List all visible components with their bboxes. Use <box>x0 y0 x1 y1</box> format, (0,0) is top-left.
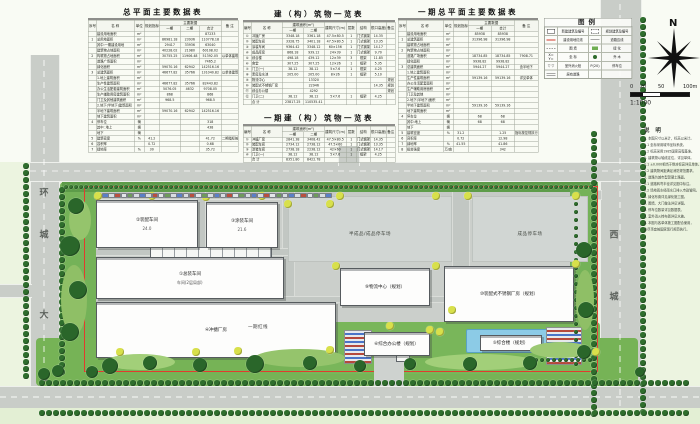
street-tree-icon <box>333 380 338 385</box>
lawn-patch <box>425 354 535 370</box>
street-tree-icon <box>144 410 149 415</box>
legend-label: 道路边线 <box>602 36 633 45</box>
street-tree-icon <box>361 410 366 415</box>
street-tree-icon <box>620 380 625 385</box>
table-cell: 装配式不锈钢厂房 <box>251 83 282 89</box>
north-compass: N <box>646 14 700 90</box>
street-tree-icon <box>340 410 345 415</box>
street-tree-icon <box>291 410 296 415</box>
street-tree-icon <box>417 380 422 385</box>
table-cell <box>324 157 346 162</box>
table-cell: 23817.25 <box>282 99 303 105</box>
street-tree-icon <box>23 303 28 308</box>
legend-label: 绿 化 <box>602 44 633 53</box>
table-cell: 生产辅助用房建筑面积 <box>96 92 134 98</box>
street-tree-icon <box>648 380 653 385</box>
street-tree-icon <box>591 152 596 157</box>
road-name-west: 城 <box>39 228 48 241</box>
table-cell: 门式钢架 <box>356 137 370 142</box>
table-cell: 342 <box>491 147 514 153</box>
scale-bar: 02050100m 1:1000 <box>630 84 700 113</box>
tree-icon <box>52 365 64 377</box>
street-tree-icon <box>591 194 596 199</box>
legend-label: 乔 木 <box>602 53 633 62</box>
street-tree-icon <box>515 410 520 415</box>
street-tree-icon <box>591 320 596 325</box>
street-tree-icon <box>613 380 618 385</box>
street-tree-icon <box>591 229 596 234</box>
street-tree-icon <box>640 388 645 393</box>
table-cell <box>221 147 238 153</box>
road-name-west: 环 <box>39 186 48 199</box>
street-tree-icon <box>640 346 645 351</box>
street-tree-icon <box>130 380 135 385</box>
street-tree-icon <box>23 366 28 371</box>
column-header: 备 注 <box>514 20 538 31</box>
column-header: 层数 <box>346 126 356 137</box>
table-cell: 35.72 <box>199 147 221 153</box>
table-cell: 万/亩 <box>443 147 453 153</box>
street-tree-icon <box>186 380 191 385</box>
street-tree-icon <box>123 410 128 415</box>
legend-label: 坐 标 <box>558 53 589 62</box>
street-tree-icon <box>109 410 114 415</box>
street-tree-icon <box>655 410 660 415</box>
street-tree-icon <box>640 24 645 29</box>
street-tree-icon <box>591 243 596 248</box>
street-tree-icon <box>23 268 28 273</box>
street-tree-icon <box>158 410 163 415</box>
table-cell: 8422.78 <box>303 157 324 162</box>
north-label: N <box>669 18 677 29</box>
road-name-east: 西 <box>609 228 618 241</box>
street-tree-icon <box>158 380 163 385</box>
street-tree-icon <box>592 380 597 385</box>
street-tree-icon <box>494 380 499 385</box>
street-tree-icon <box>23 373 28 378</box>
street-tree-icon <box>591 145 596 150</box>
street-tree-icon <box>144 380 149 385</box>
street-tree-icon <box>501 410 506 415</box>
table-cell: 指标按控规执行 <box>514 130 538 136</box>
street-tree-icon <box>23 359 28 364</box>
street-tree-icon <box>578 410 583 415</box>
ornamental-tree-icon <box>116 348 123 355</box>
street-tree-icon <box>591 201 596 206</box>
street-tree-icon <box>591 250 596 255</box>
street-tree-icon <box>277 380 282 385</box>
building-label: ⑥综合办公楼（规划） <box>375 342 420 347</box>
column-header: 檐口高度(m) <box>370 22 386 33</box>
column-header: 编号 <box>243 126 251 137</box>
street-tree-icon <box>326 380 331 385</box>
tree-icon <box>523 356 537 370</box>
street-tree-icon <box>23 212 28 217</box>
street-tree-icon <box>207 410 212 415</box>
table-cell <box>356 99 370 105</box>
street-tree-icon <box>431 380 436 385</box>
street-tree-icon <box>23 184 28 189</box>
table-row: 办公生活配套建筑面积m²5076.0546329708.05 <box>88 86 238 92</box>
street-tree-icon <box>319 380 324 385</box>
street-tree-icon <box>60 410 65 415</box>
street-tree-icon <box>23 317 28 322</box>
street-tree-icon <box>640 17 645 22</box>
scale-tick-label: 50 <box>658 84 664 90</box>
column-header: 序号 <box>88 20 96 31</box>
table-row: 生产性建筑面积m²46677.823576682443.82 <box>88 81 238 87</box>
table-cell: 47.5×80.5 <box>324 39 346 45</box>
street-tree-icon <box>333 410 338 415</box>
street-tree-icon <box>39 380 44 385</box>
table-row: 3总建筑面积m²46677.8235766131040.82以单体建筑面积计 <box>88 70 238 76</box>
legend-title: 图例 <box>545 19 633 28</box>
legend-symbol-fence <box>545 44 558 53</box>
street-tree-icon <box>256 380 261 385</box>
street-tree-icon <box>23 240 28 245</box>
street-tree-icon <box>640 31 645 36</box>
street-tree-icon <box>23 226 28 231</box>
street-tree-icon <box>74 380 79 385</box>
street-tree-icon <box>23 163 28 168</box>
street-tree-icon <box>23 261 28 266</box>
street-tree-icon <box>23 254 28 259</box>
yard-label: 半成品/成品停车场 <box>349 230 391 237</box>
tree-icon <box>102 358 118 374</box>
street-tree-icon <box>396 380 401 385</box>
street-tree-icon <box>312 380 317 385</box>
street-tree-icon <box>522 380 527 385</box>
street-tree-icon <box>256 410 261 415</box>
street-tree-icon <box>214 410 219 415</box>
street-tree-icon <box>536 410 541 415</box>
street-tree-icon <box>396 410 401 415</box>
street-tree-icon <box>368 410 373 415</box>
street-tree-icon <box>67 380 72 385</box>
street-tree-icon <box>46 410 51 415</box>
street-tree-icon <box>74 410 79 415</box>
ornamental-tree-icon <box>386 322 393 329</box>
street-tree-icon <box>298 410 303 415</box>
street-tree-icon <box>95 380 100 385</box>
street-tree-icon <box>557 410 562 415</box>
street-tree-icon <box>291 380 296 385</box>
street-tree-icon <box>640 402 645 407</box>
street-tree-icon <box>67 410 72 415</box>
table-cell <box>324 99 346 105</box>
street-tree-icon <box>564 410 569 415</box>
scale-ratio: 1:1000 <box>630 99 690 106</box>
street-tree-icon <box>591 397 596 402</box>
table-cell: 11906.48 <box>180 53 199 59</box>
table-cell: 规划 <box>386 77 395 83</box>
street-tree-icon <box>263 410 268 415</box>
scale-tick-label: 0 <box>630 84 633 90</box>
table-title: 建（构）筑物一览表 <box>243 8 395 22</box>
table-row: 合 计23817.25110535.41 <box>243 99 395 105</box>
street-tree-icon <box>543 380 548 385</box>
table-cell <box>370 99 386 105</box>
street-tree-icon <box>179 380 184 385</box>
annotation: 一期红线 <box>248 323 268 330</box>
street-tree-icon <box>340 380 345 385</box>
street-tree-icon <box>23 324 28 329</box>
table-cell: 规划 <box>386 83 395 89</box>
street-tree-icon <box>23 338 28 343</box>
street-tree-icon <box>550 410 555 415</box>
table-cell: 合 计 <box>251 99 282 105</box>
table-title: 总平面主要数据表 <box>88 6 238 20</box>
tree-icon <box>193 358 207 372</box>
street-tree-icon <box>95 410 100 415</box>
tree-icon <box>246 355 264 373</box>
street-tree-icon <box>508 410 513 415</box>
table-cell: 规划 <box>386 88 395 94</box>
street-tree-icon <box>424 410 429 415</box>
table-row: 半地下建筑面积m²59070.1662942142516.16 <box>88 108 238 114</box>
table-cell: 40228.02 <box>159 48 180 54</box>
tree-icon <box>68 198 84 214</box>
table-row: 8投资强度万/亩342 <box>398 147 538 153</box>
table-cell <box>514 147 538 153</box>
table-phase1-site-data: 一期总平面主要数据表序号名 称单位规划指标主要数据备 注一期合计建设用地面积m²… <box>398 6 538 299</box>
legend-symbol-tree <box>589 53 602 62</box>
street-tree-icon <box>39 410 44 415</box>
street-tree-icon <box>591 264 596 269</box>
street-tree-icon <box>591 215 596 220</box>
table-cell: 投资强度 <box>406 147 443 153</box>
ornamental-tree-icon <box>572 192 579 199</box>
street-tree-icon <box>382 380 387 385</box>
street-tree-icon <box>515 380 520 385</box>
street-tree-icon <box>319 410 324 415</box>
table-cell: 46677.82 <box>159 70 180 76</box>
street-tree-icon <box>221 410 226 415</box>
building-label: ⑤综合楼（规划） <box>493 341 529 346</box>
street-tree-icon <box>59 341 64 346</box>
table-cell: 8351.80 <box>282 157 303 162</box>
street-tree-icon <box>23 345 28 350</box>
street-tree-icon <box>59 229 64 234</box>
street-tree-icon <box>23 282 28 287</box>
street-tree-icon <box>620 410 625 415</box>
column-header: 规划指标 <box>144 20 159 31</box>
ornamental-tree-icon <box>326 346 333 353</box>
table-cell: 46677.82 <box>159 81 180 87</box>
table-cell <box>386 157 395 162</box>
street-tree-icon <box>172 410 177 415</box>
table-cell: 门式钢架 <box>356 50 370 56</box>
table-cell: 门式钢架 <box>356 39 370 45</box>
table-cell: 30755.25 <box>159 53 180 59</box>
street-tree-icon <box>23 205 28 210</box>
street-tree-icon <box>193 410 198 415</box>
ornamental-tree-icon <box>234 347 241 354</box>
street-tree-icon <box>23 219 28 224</box>
street-tree-icon <box>591 369 596 374</box>
tree-icon <box>577 345 591 359</box>
street-tree-icon <box>88 410 93 415</box>
street-tree-icon <box>591 341 596 346</box>
street-tree-icon <box>172 380 177 385</box>
street-tree-icon <box>662 380 667 385</box>
street-tree-icon <box>640 73 645 78</box>
table-cell: 2.地下(半地下)建筑面积 <box>96 103 134 109</box>
table-cell: 8 <box>398 147 406 153</box>
street-tree-icon <box>591 173 596 178</box>
column-header: 序号 <box>398 20 406 31</box>
street-tree-icon <box>23 331 28 336</box>
scale-numbers: 02050100m <box>630 84 700 88</box>
street-tree-icon <box>23 198 28 203</box>
table-cell: 82443.82 <box>199 81 221 87</box>
column-header: 名 称 <box>406 20 443 31</box>
street-tree-icon <box>543 410 548 415</box>
street-tree-icon <box>214 380 219 385</box>
street-tree-icon <box>375 380 380 385</box>
street-tree-icon <box>591 257 596 262</box>
table-cell <box>370 157 386 162</box>
column-header: 单位 <box>443 20 453 31</box>
column-header: 名 称 <box>251 22 282 33</box>
tree-icon <box>354 360 366 372</box>
street-tree-icon <box>263 380 268 385</box>
street-tree-icon <box>53 410 58 415</box>
street-tree-icon <box>655 380 660 385</box>
street-tree-icon <box>305 380 310 385</box>
street-tree-icon <box>640 38 645 43</box>
street-tree-icon <box>137 410 142 415</box>
street-tree-icon <box>242 380 247 385</box>
table-cell: 142516.16 <box>199 108 221 114</box>
table-cell <box>159 147 180 153</box>
street-tree-icon <box>599 380 604 385</box>
street-tree-icon <box>683 380 688 385</box>
street-tree-icon <box>151 410 156 415</box>
street-tree-icon <box>676 380 681 385</box>
legend: 图例新建建筑及编号规划建筑及编号建设用地红线道路边线围 墙绿 化X= Y=坐 标… <box>544 18 632 140</box>
street-tree-icon <box>473 380 478 385</box>
street-tree-icon <box>165 410 170 415</box>
table-cell: 47.5×80.5 <box>324 137 346 142</box>
building-label: ④冲搪厂房 <box>205 328 227 333</box>
building: ⑥综合办公楼（规划） <box>364 332 430 356</box>
street-tree-icon <box>591 166 596 171</box>
table-row: 1总用地面积m²86981.1823936110778.18 <box>88 37 238 43</box>
street-tree-icon <box>228 380 233 385</box>
street-tree-icon <box>641 410 646 415</box>
notes-title: 说 明 <box>644 126 699 134</box>
street-tree-icon <box>137 380 142 385</box>
street-tree-icon <box>53 380 58 385</box>
street-tree-icon <box>59 348 64 353</box>
street-tree-icon <box>382 410 387 415</box>
column-header: 结构 <box>356 22 370 33</box>
street-tree-icon <box>466 380 471 385</box>
legend-label: 原有道路 <box>558 70 589 79</box>
street-tree-icon <box>640 52 645 57</box>
street-tree-icon <box>640 45 645 50</box>
street-tree-icon <box>60 380 65 385</box>
table-cell: 59070.16 <box>159 108 180 114</box>
street-tree-icon <box>557 380 562 385</box>
street-tree-icon <box>452 410 457 415</box>
legend-label <box>602 70 633 79</box>
table-cell: 以单体建筑面积计 <box>221 70 238 76</box>
street-tree-icon <box>23 352 28 357</box>
table-cell: 47.5×80.5 <box>324 33 346 39</box>
site-plan-sheet: 半成品/成品停车场成品停车场②装配车间24.0③涂装车间21.6①总装车间车间(… <box>0 0 700 424</box>
street-tree-icon <box>361 380 366 385</box>
table-row: 建筑物占地面积m²40228.022198060108.02 <box>88 48 238 54</box>
table-site-data: 总平面主要数据表序号名 称单位规划指标主要数据备 注一期二期合计建设用地面积m²… <box>88 6 238 299</box>
street-tree-icon <box>123 380 128 385</box>
street-tree-icon <box>578 380 583 385</box>
table-cell: 110778.18 <box>199 37 221 43</box>
column-header: 备 注 <box>221 20 238 31</box>
street-tree-icon <box>683 410 688 415</box>
building-note: 21.6 <box>238 228 247 232</box>
column-header: 结构 <box>356 126 370 137</box>
street-tree-icon <box>591 362 596 367</box>
legend-symbol-plan <box>589 27 602 36</box>
scale-tick-label: 20 <box>640 84 646 90</box>
table-cell: 以单体建筑面积计 <box>221 53 238 59</box>
table-cell: 门式钢架 <box>356 33 370 39</box>
street-tree-icon <box>179 410 184 415</box>
table-cell: 60108.02 <box>199 48 221 54</box>
street-tree-icon <box>473 410 478 415</box>
street-tree-icon <box>494 410 499 415</box>
street-tree-icon <box>529 380 534 385</box>
street-tree-icon <box>591 327 596 332</box>
street-tree-icon <box>23 191 28 196</box>
street-tree-icon <box>591 236 596 241</box>
street-tree-icon <box>305 410 310 415</box>
table-cell: 51392.05 <box>199 53 221 59</box>
tree-icon <box>303 356 317 370</box>
street-tree-icon <box>354 410 359 415</box>
street-tree-icon <box>59 222 64 227</box>
table-cell: 门式钢架 <box>356 147 370 152</box>
street-tree-icon <box>59 208 64 213</box>
table-cell <box>346 157 356 162</box>
street-tree-icon <box>389 410 394 415</box>
notes-block: 说 明 1. 本图尺寸以米计，标高以米计。1.1 坐标采用城市坐标系统。1.2 … <box>644 126 699 340</box>
street-tree-icon <box>347 410 352 415</box>
column-header: 建筑尺寸(m) <box>324 22 346 33</box>
table-cell: 86981.18 <box>159 37 180 43</box>
street-tree-icon <box>221 380 226 385</box>
column-header: 层数 <box>346 22 356 33</box>
street-tree-icon <box>640 66 645 71</box>
legend-symbol-parking: P(20) <box>589 62 602 71</box>
table-row: 合 计8351.808422.78 <box>243 157 395 162</box>
street-tree-icon <box>487 410 492 415</box>
street-tree-icon <box>634 410 639 415</box>
street-tree-icon <box>571 380 576 385</box>
street-tree-icon <box>102 410 107 415</box>
column-header: 名 称 <box>96 20 134 31</box>
street-tree-icon <box>23 170 28 175</box>
street-tree-icon <box>81 380 86 385</box>
street-tree-icon <box>627 410 632 415</box>
table-cell: 绿地率 <box>96 147 134 153</box>
ornamental-tree-icon <box>572 260 579 267</box>
legend-symbol-hydrant: ▽ ▽ <box>545 62 558 71</box>
street-tree-icon <box>200 410 205 415</box>
street-tree-icon <box>522 410 527 415</box>
